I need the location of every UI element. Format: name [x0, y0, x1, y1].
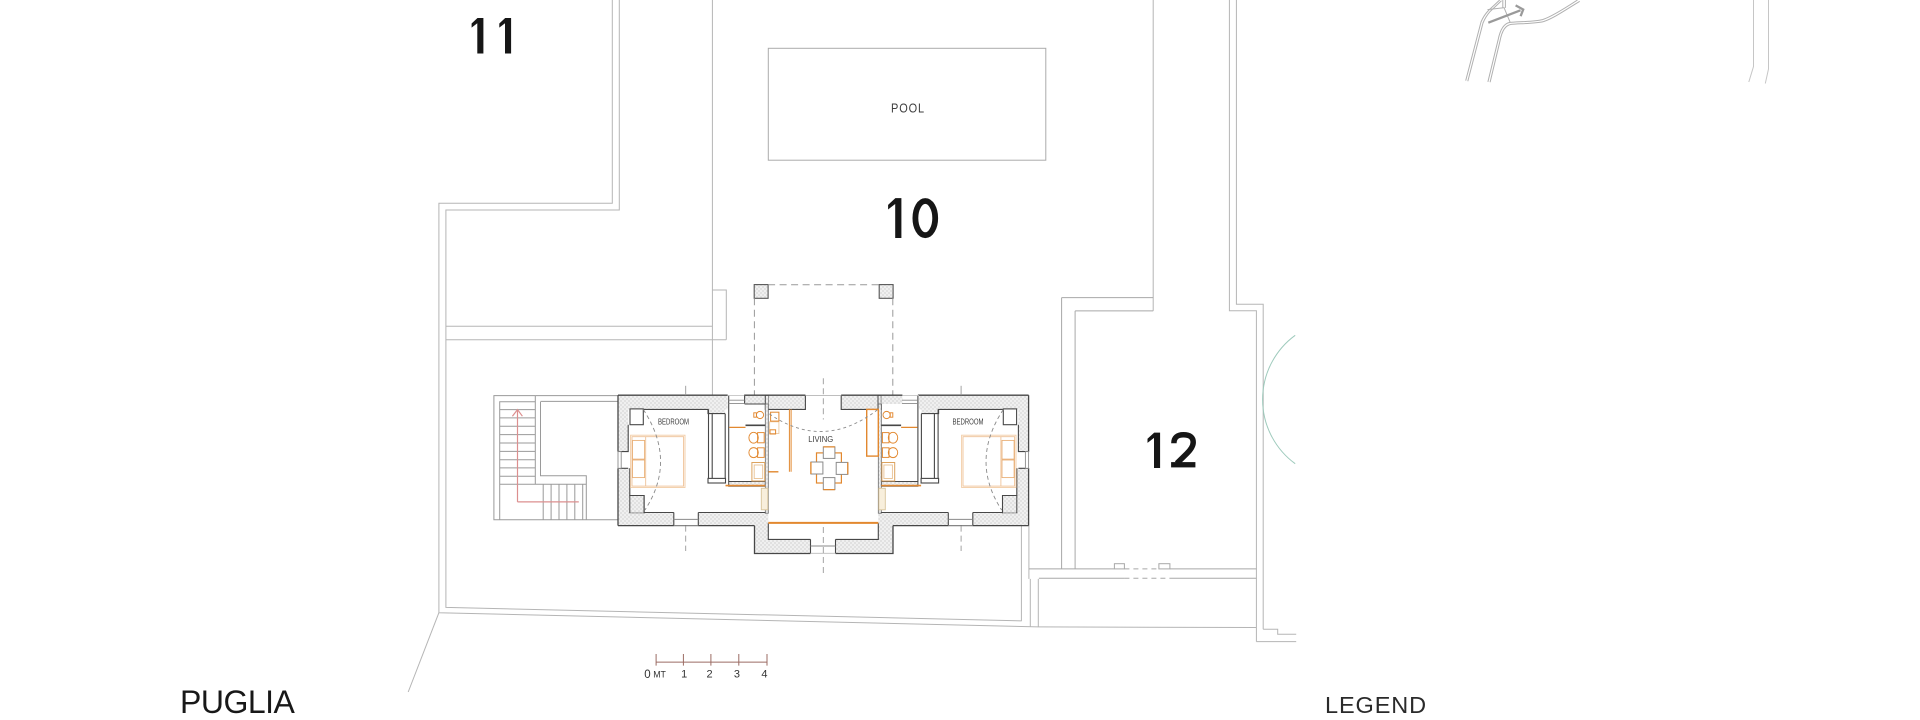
svg-text:LIVING: LIVING: [808, 435, 833, 444]
svg-text:1: 1: [681, 669, 687, 681]
svg-text:BEDROOM: BEDROOM: [953, 417, 984, 426]
svg-text:POOL: POOL: [891, 102, 925, 116]
svg-text:LEGEND: LEGEND: [1325, 692, 1427, 718]
svg-text:4: 4: [761, 669, 767, 681]
svg-text:BEDROOM: BEDROOM: [658, 417, 689, 426]
svg-text:0: 0: [644, 669, 650, 681]
svg-text:3: 3: [734, 669, 740, 681]
svg-text:MT: MT: [653, 670, 666, 680]
svg-text:2: 2: [706, 669, 712, 681]
svg-text:PUGLIA: PUGLIA: [180, 684, 296, 720]
